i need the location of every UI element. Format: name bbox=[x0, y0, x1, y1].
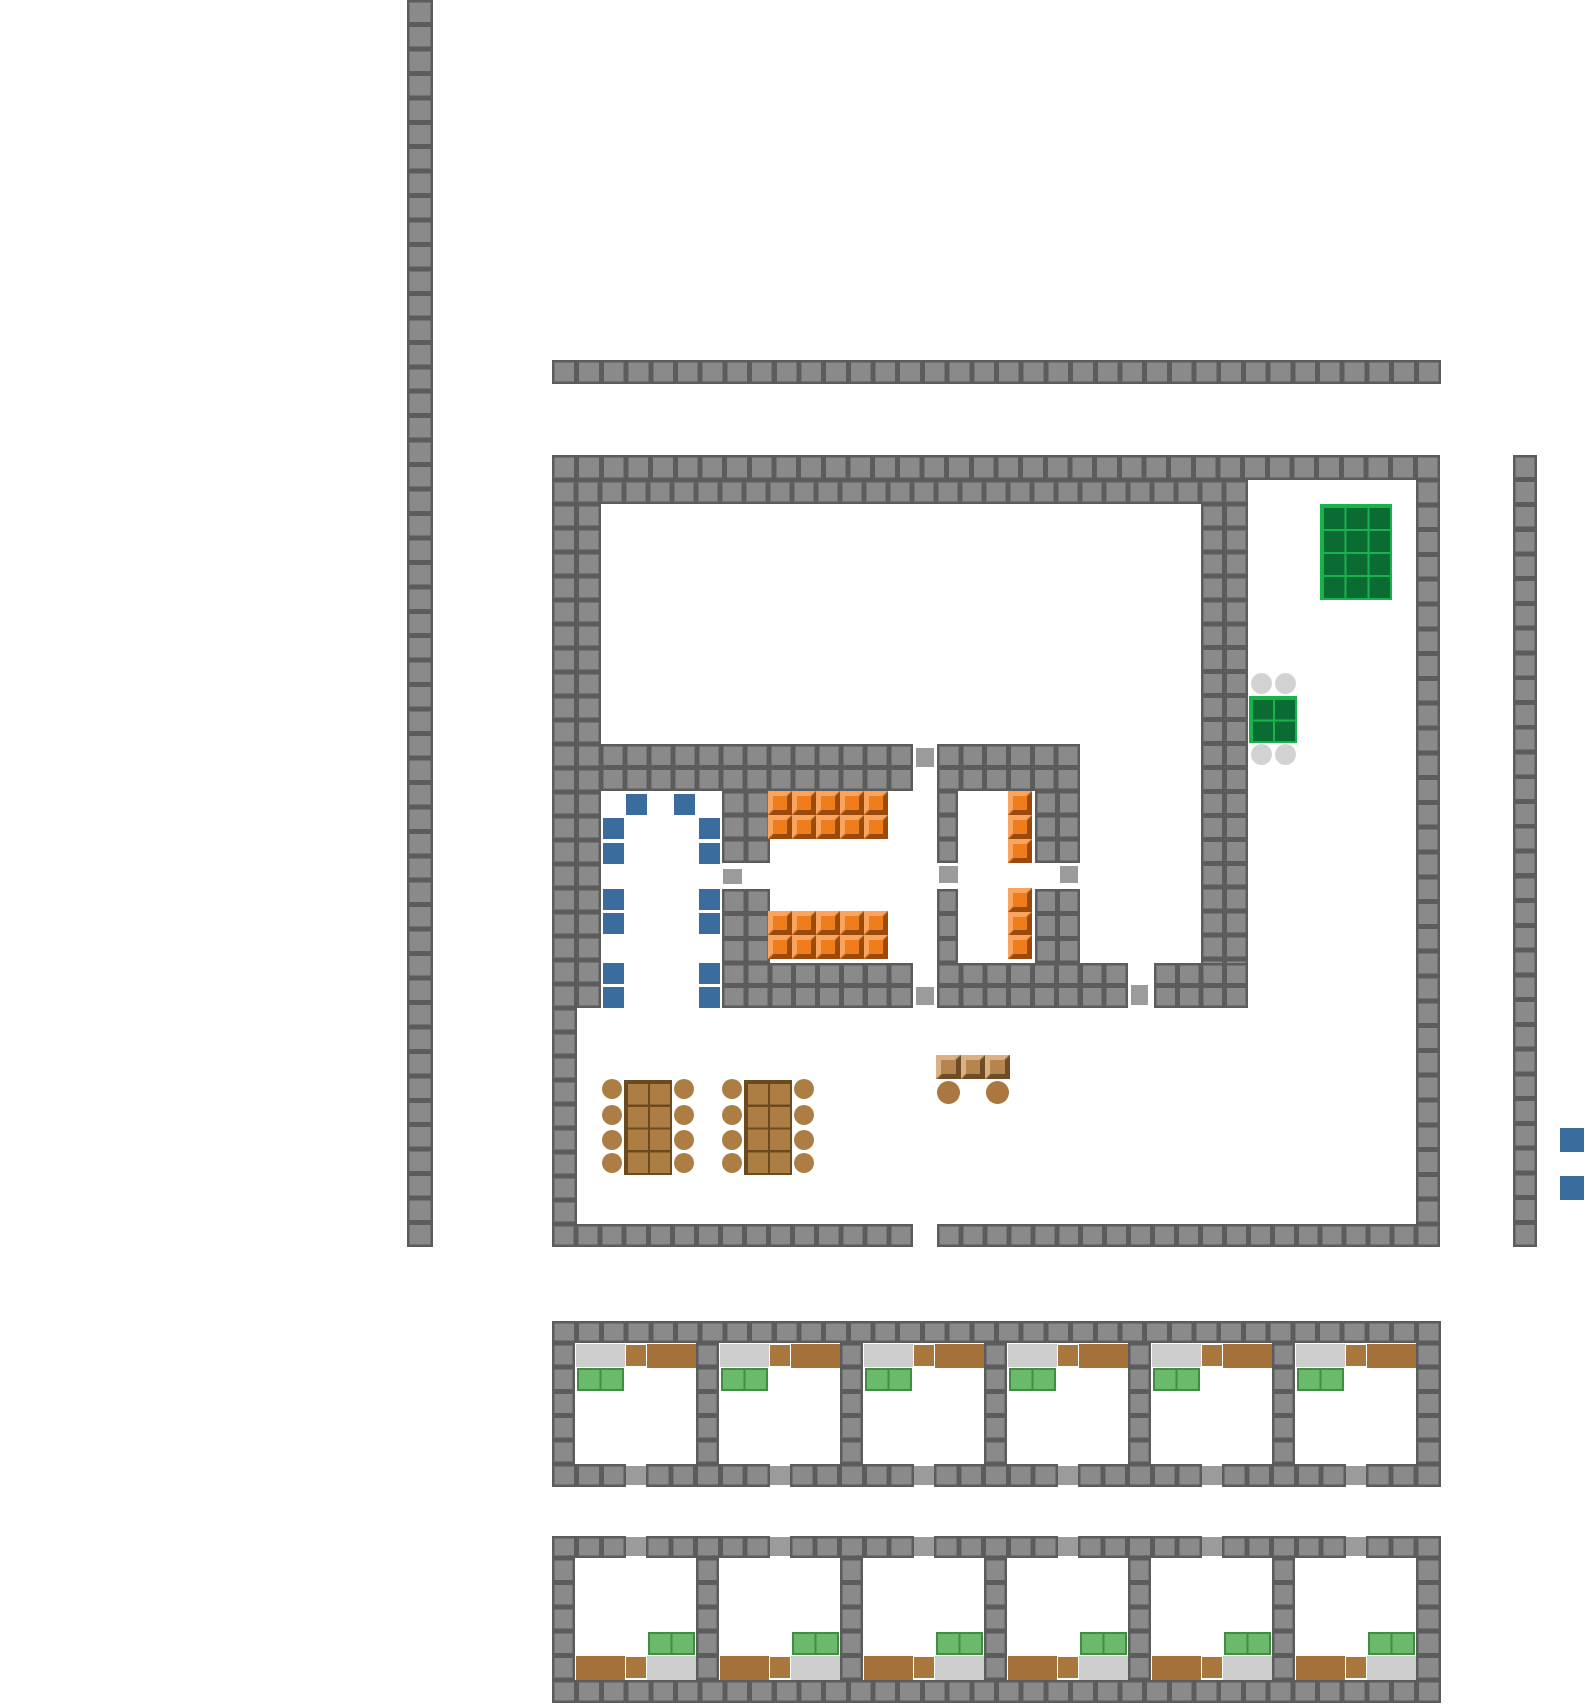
bench-orange-tile[interactable] bbox=[768, 911, 792, 935]
chair-blue[interactable] bbox=[699, 987, 720, 1008]
bench-orange-tile[interactable] bbox=[768, 935, 792, 959]
nightstand[interactable] bbox=[626, 1657, 646, 1678]
dresser[interactable] bbox=[1079, 1344, 1128, 1368]
wall-segment-b1-div1[interactable] bbox=[696, 1343, 719, 1464]
wall-segment-v2-a[interactable] bbox=[937, 791, 958, 863]
bed-sheet[interactable] bbox=[791, 1656, 840, 1680]
wall-segment-bldg-west-a[interactable] bbox=[552, 504, 601, 1008]
dresser[interactable] bbox=[1152, 1656, 1201, 1680]
bed-blanket[interactable] bbox=[936, 1632, 983, 1655]
dining-chair[interactable] bbox=[722, 1079, 742, 1099]
game-map bbox=[0, 0, 1585, 1705]
wall-segment-b1-bot2[interactable] bbox=[646, 1464, 770, 1487]
bench-orange-tile[interactable] bbox=[864, 815, 888, 839]
nightstand[interactable] bbox=[1202, 1657, 1222, 1678]
bench-orange-tile[interactable] bbox=[864, 911, 888, 935]
dresser[interactable] bbox=[1008, 1656, 1057, 1680]
wall-segment-north-strip[interactable] bbox=[552, 360, 1441, 384]
door[interactable] bbox=[1058, 1466, 1078, 1485]
wall-segment-east-long[interactable] bbox=[1513, 455, 1537, 1247]
dining-chair[interactable] bbox=[794, 1153, 814, 1173]
wall-segment-b1-east[interactable] bbox=[1416, 1343, 1441, 1464]
door[interactable] bbox=[770, 1466, 790, 1485]
bed-blanket[interactable] bbox=[577, 1368, 624, 1391]
chair-gray[interactable] bbox=[1275, 673, 1296, 694]
wall-segment-b2-top1[interactable] bbox=[552, 1536, 626, 1558]
wall-segment-b2-top2[interactable] bbox=[646, 1536, 770, 1558]
chair-blue[interactable] bbox=[603, 843, 624, 864]
bed-blanket[interactable] bbox=[648, 1632, 695, 1655]
bench-orange-tile[interactable] bbox=[1008, 839, 1032, 863]
wall-segment-bldg-south-a[interactable] bbox=[552, 1224, 913, 1247]
wall-segment-bldg-west-b[interactable] bbox=[552, 1008, 577, 1224]
door[interactable] bbox=[626, 1466, 646, 1485]
chair-blue[interactable] bbox=[674, 794, 695, 815]
bed-blanket[interactable] bbox=[1224, 1632, 1271, 1655]
dining-table-2[interactable] bbox=[744, 1080, 792, 1175]
door[interactable] bbox=[1202, 1537, 1222, 1556]
wall-segment-v1-b[interactable] bbox=[722, 889, 770, 963]
door[interactable] bbox=[770, 1537, 790, 1556]
counter-stool[interactable] bbox=[986, 1081, 1009, 1104]
wall-segment-b2-div3[interactable] bbox=[984, 1558, 1007, 1680]
wall-segment-rooms-south-a[interactable] bbox=[722, 963, 913, 1008]
wall-segment-v2-b[interactable] bbox=[937, 889, 958, 963]
chair-blue[interactable] bbox=[603, 913, 624, 934]
wall-segment-rooms-south-c[interactable] bbox=[1154, 963, 1248, 1008]
dining-chair[interactable] bbox=[722, 1153, 742, 1173]
wall-segment-b1-div4[interactable] bbox=[1128, 1343, 1151, 1464]
door[interactable] bbox=[1346, 1537, 1366, 1556]
chair-blue[interactable] bbox=[603, 963, 624, 984]
wall-marker-blue[interactable] bbox=[1560, 1128, 1584, 1152]
dresser[interactable] bbox=[1367, 1344, 1416, 1368]
counter-tile[interactable] bbox=[961, 1055, 986, 1079]
bed-blanket[interactable] bbox=[721, 1368, 768, 1391]
wall-segment-b2-east[interactable] bbox=[1416, 1558, 1441, 1680]
wall-segment-b2-top3[interactable] bbox=[790, 1536, 914, 1558]
wall-segment-b1-bot4[interactable] bbox=[934, 1464, 1058, 1487]
dining-chair[interactable] bbox=[794, 1130, 814, 1150]
bench-orange-tile[interactable] bbox=[864, 935, 888, 959]
wall-segment-b1-west[interactable] bbox=[552, 1343, 575, 1464]
counter-stool[interactable] bbox=[937, 1081, 960, 1104]
bed-sheet[interactable] bbox=[576, 1344, 625, 1367]
chair-blue[interactable] bbox=[699, 843, 720, 864]
bed-sheet[interactable] bbox=[935, 1656, 984, 1680]
bed-blanket[interactable] bbox=[865, 1368, 912, 1391]
door[interactable] bbox=[1131, 985, 1148, 1005]
dining-chair[interactable] bbox=[602, 1153, 622, 1173]
bench-orange-tile[interactable] bbox=[792, 911, 816, 935]
dresser[interactable] bbox=[1223, 1344, 1272, 1368]
chair-gray[interactable] bbox=[1275, 744, 1296, 765]
bench-orange-tile[interactable] bbox=[816, 815, 840, 839]
chair-blue[interactable] bbox=[699, 913, 720, 934]
dresser[interactable] bbox=[1296, 1656, 1345, 1680]
bench-orange-tile[interactable] bbox=[792, 791, 816, 815]
nightstand[interactable] bbox=[914, 1345, 934, 1366]
dining-chair[interactable] bbox=[602, 1079, 622, 1099]
bench-orange-tile[interactable] bbox=[792, 935, 816, 959]
counter-tile[interactable] bbox=[985, 1055, 1010, 1079]
wall-segment-bldg-top-r1[interactable] bbox=[552, 455, 1440, 480]
bench-orange-tile[interactable] bbox=[768, 791, 792, 815]
bench-orange-tile[interactable] bbox=[1008, 815, 1032, 839]
bed-sheet[interactable] bbox=[1079, 1656, 1128, 1680]
wall-segment-b2-top5[interactable] bbox=[1078, 1536, 1202, 1558]
bed-blanket[interactable] bbox=[1368, 1632, 1415, 1655]
bench-orange-tile[interactable] bbox=[816, 911, 840, 935]
bed-sheet[interactable] bbox=[1008, 1344, 1057, 1367]
dining-chair[interactable] bbox=[674, 1153, 694, 1173]
bench-orange-tile[interactable] bbox=[840, 791, 864, 815]
dresser[interactable] bbox=[791, 1344, 840, 1368]
door[interactable] bbox=[626, 1537, 646, 1556]
dining-chair[interactable] bbox=[602, 1105, 622, 1125]
door[interactable] bbox=[914, 1466, 934, 1485]
wall-segment-b1-top[interactable] bbox=[552, 1321, 1441, 1343]
bed-sheet[interactable] bbox=[1152, 1344, 1201, 1367]
chair-blue[interactable] bbox=[603, 889, 624, 910]
dresser[interactable] bbox=[720, 1656, 769, 1680]
wall-segment-b1-bot3[interactable] bbox=[790, 1464, 914, 1487]
dresser[interactable] bbox=[576, 1656, 625, 1680]
bed-blanket[interactable] bbox=[1009, 1368, 1056, 1391]
dining-chair[interactable] bbox=[602, 1130, 622, 1150]
bench-orange-tile[interactable] bbox=[816, 791, 840, 815]
dining-chair[interactable] bbox=[794, 1079, 814, 1099]
chair-blue[interactable] bbox=[699, 963, 720, 984]
bed-sheet[interactable] bbox=[1367, 1656, 1416, 1680]
nightstand[interactable] bbox=[1346, 1657, 1366, 1678]
wall-segment-bldg-south-b[interactable] bbox=[937, 1224, 1440, 1247]
wall-segment-b2-top7[interactable] bbox=[1366, 1536, 1441, 1558]
nightstand[interactable] bbox=[914, 1657, 934, 1678]
bench-orange-tile[interactable] bbox=[792, 815, 816, 839]
nightstand[interactable] bbox=[1058, 1345, 1078, 1366]
door[interactable] bbox=[916, 987, 934, 1005]
bed-blanket[interactable] bbox=[1297, 1368, 1344, 1391]
wall-segment-bldg-east[interactable] bbox=[1416, 480, 1440, 1224]
wall-marker-blue[interactable] bbox=[1560, 1176, 1584, 1200]
bed-blanket[interactable] bbox=[792, 1632, 839, 1655]
wall-segment-b2-div1[interactable] bbox=[696, 1558, 719, 1680]
wall-segment-b2-top4[interactable] bbox=[934, 1536, 1058, 1558]
dresser[interactable] bbox=[647, 1344, 696, 1368]
chair-gray[interactable] bbox=[1251, 744, 1272, 765]
dining-chair[interactable] bbox=[674, 1130, 694, 1150]
chair-blue[interactable] bbox=[603, 987, 624, 1008]
bench-orange-tile[interactable] bbox=[840, 935, 864, 959]
wall-segment-b1-div3[interactable] bbox=[984, 1343, 1007, 1464]
wall-segment-b1-bot7[interactable] bbox=[1366, 1464, 1441, 1487]
wall-segment-v3-b[interactable] bbox=[1035, 889, 1080, 963]
door[interactable] bbox=[939, 866, 958, 883]
wall-segment-v3-a[interactable] bbox=[1035, 791, 1080, 863]
table-green-large[interactable] bbox=[1320, 504, 1392, 600]
wall-segment-divider-east[interactable] bbox=[1201, 504, 1248, 1007]
dining-chair[interactable] bbox=[794, 1105, 814, 1125]
wall-segment-b1-bot6[interactable] bbox=[1222, 1464, 1346, 1487]
dining-chair[interactable] bbox=[674, 1079, 694, 1099]
door[interactable] bbox=[723, 869, 742, 884]
dresser[interactable] bbox=[864, 1656, 913, 1680]
counter-tile[interactable] bbox=[936, 1055, 961, 1079]
wall-segment-mid-h-a[interactable] bbox=[601, 744, 913, 791]
door[interactable] bbox=[1346, 1466, 1366, 1485]
dining-chair[interactable] bbox=[722, 1105, 742, 1125]
bench-orange-tile[interactable] bbox=[840, 911, 864, 935]
bench-orange-tile[interactable] bbox=[1008, 888, 1032, 912]
dining-chair[interactable] bbox=[674, 1105, 694, 1125]
nightstand[interactable] bbox=[770, 1657, 790, 1678]
chair-blue[interactable] bbox=[626, 794, 647, 815]
nightstand[interactable] bbox=[626, 1345, 646, 1366]
bench-orange-tile[interactable] bbox=[864, 791, 888, 815]
chair-blue[interactable] bbox=[699, 889, 720, 910]
wall-segment-west-long[interactable] bbox=[407, 0, 433, 1247]
nightstand[interactable] bbox=[1346, 1345, 1366, 1366]
dresser[interactable] bbox=[935, 1344, 984, 1368]
chair-blue[interactable] bbox=[603, 818, 624, 839]
bench-orange-tile[interactable] bbox=[840, 815, 864, 839]
door[interactable] bbox=[1202, 1466, 1222, 1485]
bed-sheet[interactable] bbox=[1296, 1344, 1345, 1367]
wall-segment-b1-bot1[interactable] bbox=[552, 1464, 626, 1487]
nightstand[interactable] bbox=[1058, 1657, 1078, 1678]
wall-segment-b2-west[interactable] bbox=[552, 1558, 575, 1680]
wall-segment-b2-bot[interactable] bbox=[552, 1680, 1441, 1703]
bench-orange-tile[interactable] bbox=[768, 815, 792, 839]
bed-sheet[interactable] bbox=[864, 1344, 913, 1367]
wall-segment-b1-div2[interactable] bbox=[840, 1343, 863, 1464]
wall-segment-rooms-south-b[interactable] bbox=[937, 963, 1128, 1008]
dining-chair[interactable] bbox=[722, 1130, 742, 1150]
bed-sheet[interactable] bbox=[720, 1344, 769, 1367]
chair-gray[interactable] bbox=[1251, 673, 1272, 694]
door[interactable] bbox=[916, 748, 934, 767]
wall-segment-mid-h-b[interactable] bbox=[937, 744, 1080, 791]
dining-table-1[interactable] bbox=[624, 1080, 672, 1175]
wall-segment-b2-div4[interactable] bbox=[1128, 1558, 1151, 1680]
bed-blanket[interactable] bbox=[1080, 1632, 1127, 1655]
bed-sheet[interactable] bbox=[1223, 1656, 1272, 1680]
door[interactable] bbox=[1060, 866, 1078, 883]
wall-segment-b1-bot5[interactable] bbox=[1078, 1464, 1202, 1487]
table-green-small[interactable] bbox=[1249, 696, 1297, 743]
door[interactable] bbox=[1058, 1537, 1078, 1556]
wall-segment-b1-div5[interactable] bbox=[1272, 1343, 1295, 1464]
bench-orange-tile[interactable] bbox=[1008, 791, 1032, 815]
door[interactable] bbox=[914, 1537, 934, 1556]
nightstand[interactable] bbox=[770, 1345, 790, 1366]
nightstand[interactable] bbox=[1202, 1345, 1222, 1366]
wall-segment-b2-div5[interactable] bbox=[1272, 1558, 1295, 1680]
wall-segment-v1-a[interactable] bbox=[722, 791, 770, 863]
bench-orange-tile[interactable] bbox=[1008, 912, 1032, 936]
wall-segment-b2-div2[interactable] bbox=[840, 1558, 863, 1680]
bench-orange-tile[interactable] bbox=[816, 935, 840, 959]
bed-sheet[interactable] bbox=[647, 1656, 696, 1680]
wall-segment-bldg-top-r2[interactable] bbox=[552, 480, 1248, 504]
bench-orange-tile[interactable] bbox=[1008, 935, 1032, 959]
bed-blanket[interactable] bbox=[1153, 1368, 1200, 1391]
wall-segment-b2-top6[interactable] bbox=[1222, 1536, 1346, 1558]
chair-blue[interactable] bbox=[699, 818, 720, 839]
